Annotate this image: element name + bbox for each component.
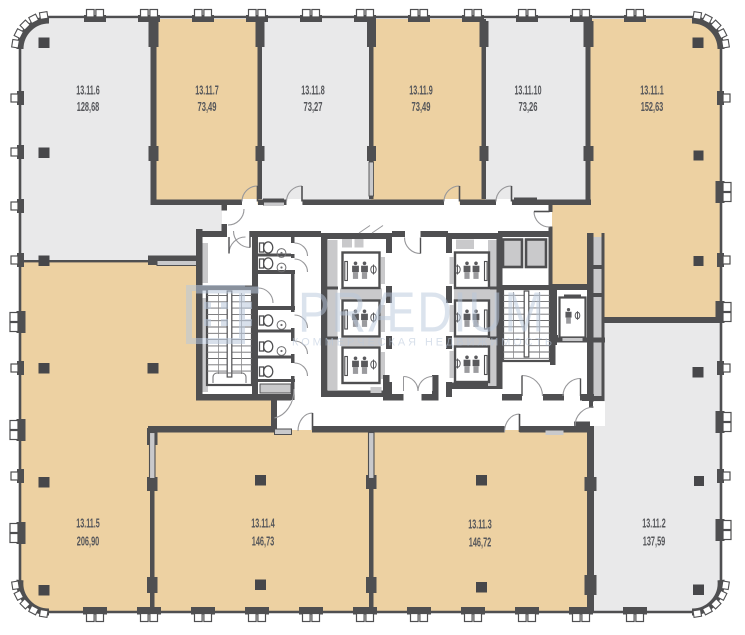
svg-text:152,63: 152,63 [641, 99, 664, 114]
svg-text:146,72: 146,72 [469, 535, 492, 550]
svg-text:13.11.7: 13.11.7 [195, 83, 219, 98]
svg-text:128,68: 128,68 [77, 99, 100, 114]
svg-text:73,49: 73,49 [198, 99, 217, 114]
svg-text:PRÆDIUM: PRÆDIUM [298, 281, 546, 345]
svg-text:13.11.10: 13.11.10 [515, 83, 542, 98]
svg-text:13.11.6: 13.11.6 [76, 83, 100, 98]
svg-text:13.11.4: 13.11.4 [251, 516, 275, 531]
svg-text:146,73: 146,73 [252, 534, 275, 549]
svg-text:13.11.5: 13.11.5 [76, 516, 100, 531]
svg-text:КОММЕРЧЕСКАЯ НЕДВИЖИМОСТЬ: КОММЕРЧЕСКАЯ НЕДВИЖИМОСТЬ [292, 337, 555, 349]
svg-text:73,27: 73,27 [304, 99, 323, 114]
svg-text:13.11.8: 13.11.8 [301, 83, 325, 98]
svg-text:13.11.2: 13.11.2 [642, 516, 666, 531]
svg-text:73,49: 73,49 [412, 99, 431, 114]
svg-text:206,90: 206,90 [77, 534, 100, 549]
svg-text:73,26: 73,26 [519, 99, 538, 114]
svg-text:13.11.3: 13.11.3 [468, 517, 492, 532]
svg-text:13.11.1: 13.11.1 [640, 83, 664, 98]
svg-text:137,59: 137,59 [643, 534, 666, 549]
svg-text:13.11.9: 13.11.9 [409, 83, 433, 98]
